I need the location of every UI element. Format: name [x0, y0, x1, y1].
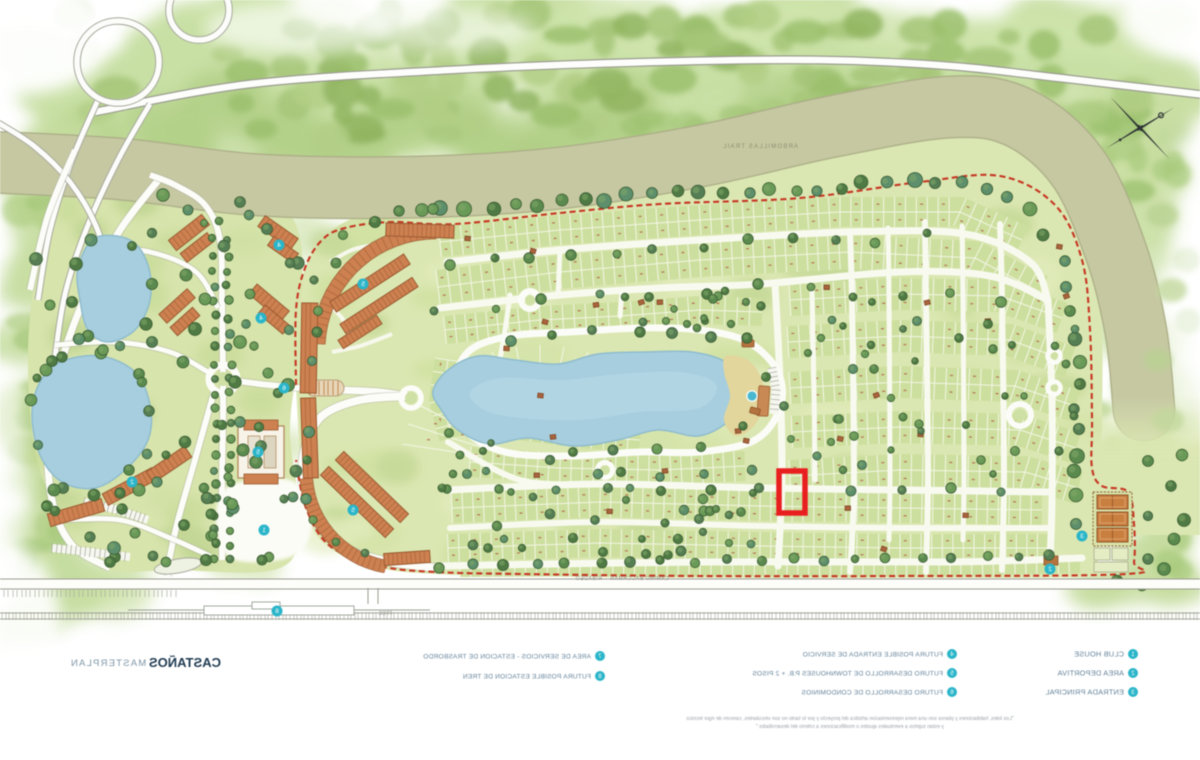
svg-text:AREA DEPORTIVA: AREA DEPORTIVA [1057, 668, 1124, 677]
svg-text:4: 4 [259, 315, 263, 322]
svg-text:CLUB HOUSE: CLUB HOUSE [1074, 649, 1124, 658]
svg-text:5: 5 [361, 281, 365, 288]
svg-text:CASTAÑOS: CASTAÑOS [149, 655, 221, 670]
svg-text:FUTURA POSIBLE ESTACION DE TRE: FUTURA POSIBLE ESTACION DE TREN [463, 673, 591, 680]
svg-text:y estan sujetos a eventuales a: y estan sujetos a eventuales ajustes o m… [756, 724, 944, 730]
svg-text:AREA DE SERVICIOS - ESTACION D: AREA DE SERVICIOS - ESTACION DE TRASBORD… [423, 653, 591, 660]
svg-text:5: 5 [351, 507, 355, 514]
svg-text:FUTURA POSIBLE ENTRADA DE SERV: FUTURA POSIBLE ENTRADA DE SERVICIO [803, 651, 943, 658]
svg-text:8: 8 [275, 608, 279, 615]
svg-text:ARBOMILLAS TRAIL: ARBOMILLAS TRAIL [722, 144, 798, 150]
svg-text:FUTURO DESARROLLO DE TOWNHOUSE: FUTURO DESARROLLO DE TOWNHOUSES P.B. + 2… [752, 670, 943, 677]
svg-text:CAMINO BACCHMAN RIBADEO: CAMINO BACCHMAN RIBADEO [575, 576, 669, 582]
svg-text:ENTRADA PRINCIPAL: ENTRADA PRINCIPAL [1045, 687, 1124, 696]
svg-text:5: 5 [256, 449, 260, 456]
svg-text:MASTERPLAN: MASTERPLAN [70, 658, 146, 669]
svg-text:6: 6 [282, 385, 286, 392]
svg-text:1: 1 [262, 527, 266, 534]
svg-text:2: 2 [1048, 566, 1052, 573]
svg-text:FFCC: FFCC [378, 611, 392, 617]
svg-text:3: 3 [1080, 533, 1084, 540]
svg-text:"Los lotes, habitaciones y pla: "Los lotes, habitaciones y planos son un… [686, 716, 1014, 722]
svg-text:2: 2 [130, 479, 134, 486]
svg-text:4: 4 [277, 242, 281, 249]
svg-text:FUTURO DESARROLLO DE CONDOMINI: FUTURO DESARROLLO DE CONDOMINIOS [801, 689, 943, 696]
